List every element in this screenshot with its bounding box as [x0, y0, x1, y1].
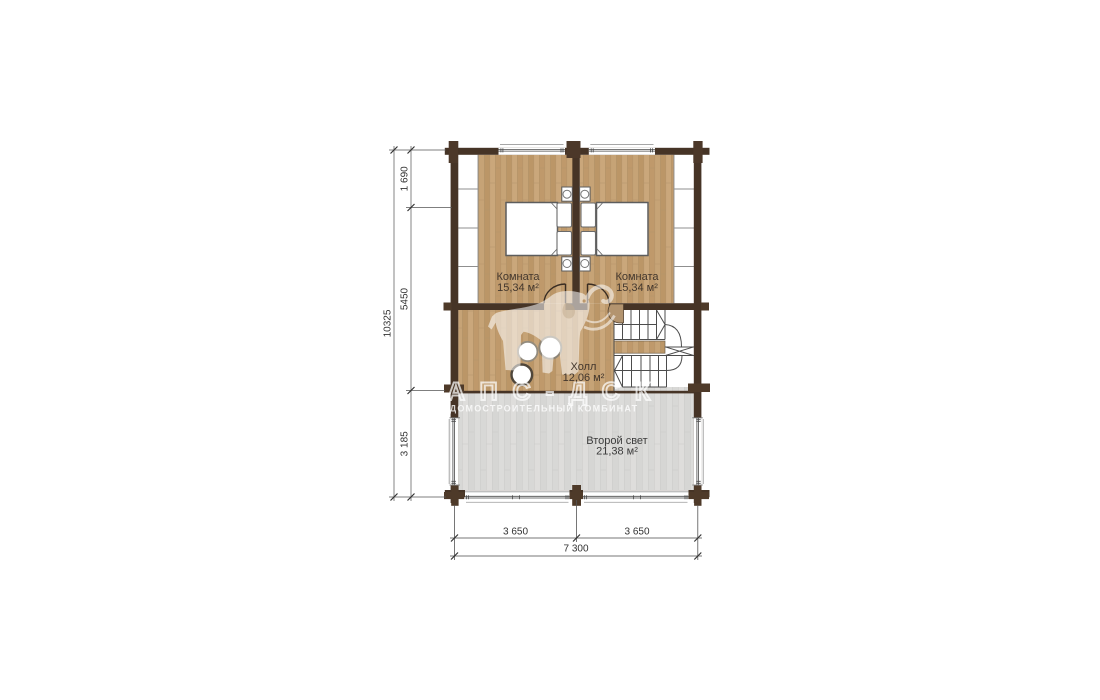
svg-text:3 650: 3 650 [624, 527, 649, 538]
svg-text:1 690: 1 690 [400, 166, 411, 191]
svg-text:15,34 м²: 15,34 м² [616, 282, 658, 294]
svg-text:3 185: 3 185 [400, 431, 411, 456]
svg-text:3 650: 3 650 [503, 527, 528, 538]
svg-text:5450: 5450 [400, 287, 411, 310]
svg-text:ДОМОСТРОИТЕЛЬНЫЙ КОМБИНАТ: ДОМОСТРОИТЕЛЬНЫЙ КОМБИНАТ [450, 403, 639, 414]
svg-text:10325: 10325 [383, 309, 394, 337]
svg-text:7 300: 7 300 [563, 544, 588, 555]
svg-text:15,34 м²: 15,34 м² [497, 282, 539, 294]
svg-text:АПС-ДСК: АПС-ДСК [447, 378, 665, 406]
svg-text:12,06 м²: 12,06 м² [563, 372, 605, 384]
svg-text:21,38 м²: 21,38 м² [596, 446, 638, 458]
